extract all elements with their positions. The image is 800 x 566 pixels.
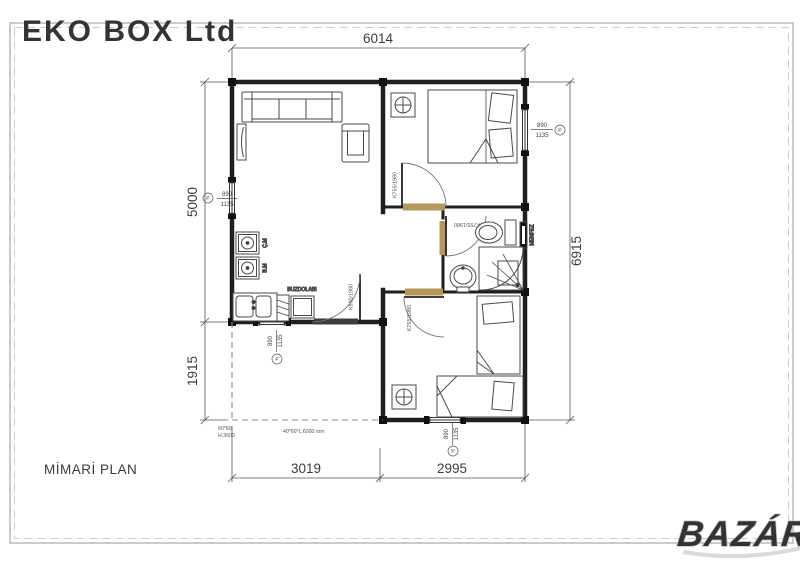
dishwasher bbox=[236, 257, 259, 279]
window-width: 890 bbox=[222, 192, 233, 198]
window-height: 1135 bbox=[221, 202, 235, 208]
logo-text: BAZÁR bbox=[676, 513, 800, 554]
window-jamb bbox=[424, 416, 429, 424]
window-height: 1135 bbox=[536, 133, 550, 139]
door-sill bbox=[403, 204, 445, 211]
dim-line-bottom bbox=[228, 424, 529, 482]
floor-plan-page: EKO BOX Ltd bbox=[0, 0, 800, 566]
bathroom-group: MENFEZ bbox=[450, 220, 536, 292]
door-label: K890/1980 bbox=[349, 284, 355, 310]
post-icon bbox=[379, 318, 387, 326]
window-label-right: 890 1135 P bbox=[531, 123, 565, 139]
door-label: K755/1980 bbox=[407, 305, 413, 331]
door-entrance: K890/1980 bbox=[312, 274, 360, 325]
counter-drainer bbox=[277, 295, 289, 321]
window-width: 890 bbox=[444, 428, 450, 439]
dishwasher-label: B.M bbox=[263, 263, 269, 272]
sofa bbox=[242, 92, 342, 122]
dim-top-value: 6014 bbox=[363, 31, 394, 46]
terrace-outline bbox=[232, 322, 383, 420]
post-icon bbox=[521, 78, 529, 86]
window-left bbox=[228, 177, 236, 219]
window-jamb bbox=[521, 151, 529, 156]
post-icon bbox=[228, 78, 236, 86]
armchair bbox=[342, 124, 369, 162]
doors-group: K755/1980 K755/1980 K755/1980 K890/1980 bbox=[312, 163, 486, 337]
pillow bbox=[482, 302, 514, 325]
window-width: 890 bbox=[268, 335, 274, 346]
kitchen-sink-counter bbox=[233, 293, 277, 321]
window-jamb bbox=[521, 104, 529, 109]
dim-right-value: 6915 bbox=[569, 236, 584, 266]
vent-grille bbox=[520, 222, 527, 248]
window-right bbox=[521, 104, 529, 156]
heater-symbol bbox=[391, 93, 415, 117]
construction-notes: 60*60 H:3600 40*60*L:6000 mm bbox=[218, 426, 325, 439]
door-swing-arc bbox=[402, 163, 446, 207]
dim-line-top bbox=[228, 44, 529, 78]
dim-left-upper-value: 5000 bbox=[185, 187, 200, 217]
note-profile: 40*60*L:6000 mm bbox=[283, 429, 325, 435]
door-bedroom1: K755/1980 bbox=[393, 163, 447, 211]
architectural-drawing: EKO BOX Ltd bbox=[0, 0, 800, 566]
refrigerator-label: BUZDOLABI bbox=[287, 287, 316, 293]
toilet bbox=[476, 220, 517, 245]
door-bedroom2: K755/1980 bbox=[404, 289, 444, 338]
living-room-group bbox=[237, 92, 369, 162]
dim-bottom-left-value: 3019 bbox=[291, 461, 321, 476]
single-bed-right bbox=[477, 296, 520, 374]
window-symbol: P bbox=[206, 196, 210, 202]
window-height: 1135 bbox=[278, 334, 284, 348]
dim-bottom-right-value: 2995 bbox=[437, 461, 467, 476]
window-height: 1135 bbox=[454, 427, 460, 441]
tv-cabinet bbox=[237, 124, 246, 160]
window-jamb bbox=[228, 177, 236, 182]
post-icon bbox=[379, 78, 387, 86]
washing-machine bbox=[236, 232, 259, 254]
pillow bbox=[488, 93, 513, 123]
page-title: MİMARİ PLAN bbox=[44, 462, 137, 477]
wash-basin bbox=[450, 265, 476, 292]
window-jamb bbox=[228, 214, 236, 219]
dim-line-left bbox=[200, 78, 228, 424]
door-label: K755/1980 bbox=[393, 172, 399, 198]
kitchen-group: Ç.M B.M BUZDOLABI bbox=[233, 232, 317, 321]
window-symbol: P bbox=[275, 357, 279, 363]
vent-label: MENFEZ bbox=[530, 224, 536, 245]
single-bed-bottom bbox=[437, 376, 523, 417]
double-bed bbox=[428, 90, 517, 163]
heater-symbol bbox=[392, 385, 416, 409]
pillow bbox=[489, 128, 513, 158]
note-column: 60*60 bbox=[218, 426, 232, 432]
watermark-eko-box: EKO BOX Ltd bbox=[22, 15, 237, 48]
washing-machine-label: Ç.M bbox=[263, 238, 269, 248]
window-label-bottom-left: 890 1135 P bbox=[268, 330, 284, 364]
corner-shower bbox=[479, 247, 523, 290]
post-icon bbox=[521, 203, 529, 211]
window-width: 890 bbox=[537, 123, 548, 129]
pillow bbox=[492, 381, 514, 411]
window-symbol: P bbox=[558, 128, 562, 134]
door-label: K755/1980 bbox=[454, 221, 480, 227]
window-symbol: P bbox=[451, 449, 455, 455]
refrigerator bbox=[291, 296, 314, 318]
bedroom1-group bbox=[391, 90, 517, 163]
door-sill bbox=[405, 289, 443, 296]
bazar-logo: BAZÁR bbox=[675, 513, 800, 556]
dim-left-lower-value: 1915 bbox=[185, 356, 200, 386]
window-label-bottom-right: 890 1135 P bbox=[444, 423, 460, 456]
